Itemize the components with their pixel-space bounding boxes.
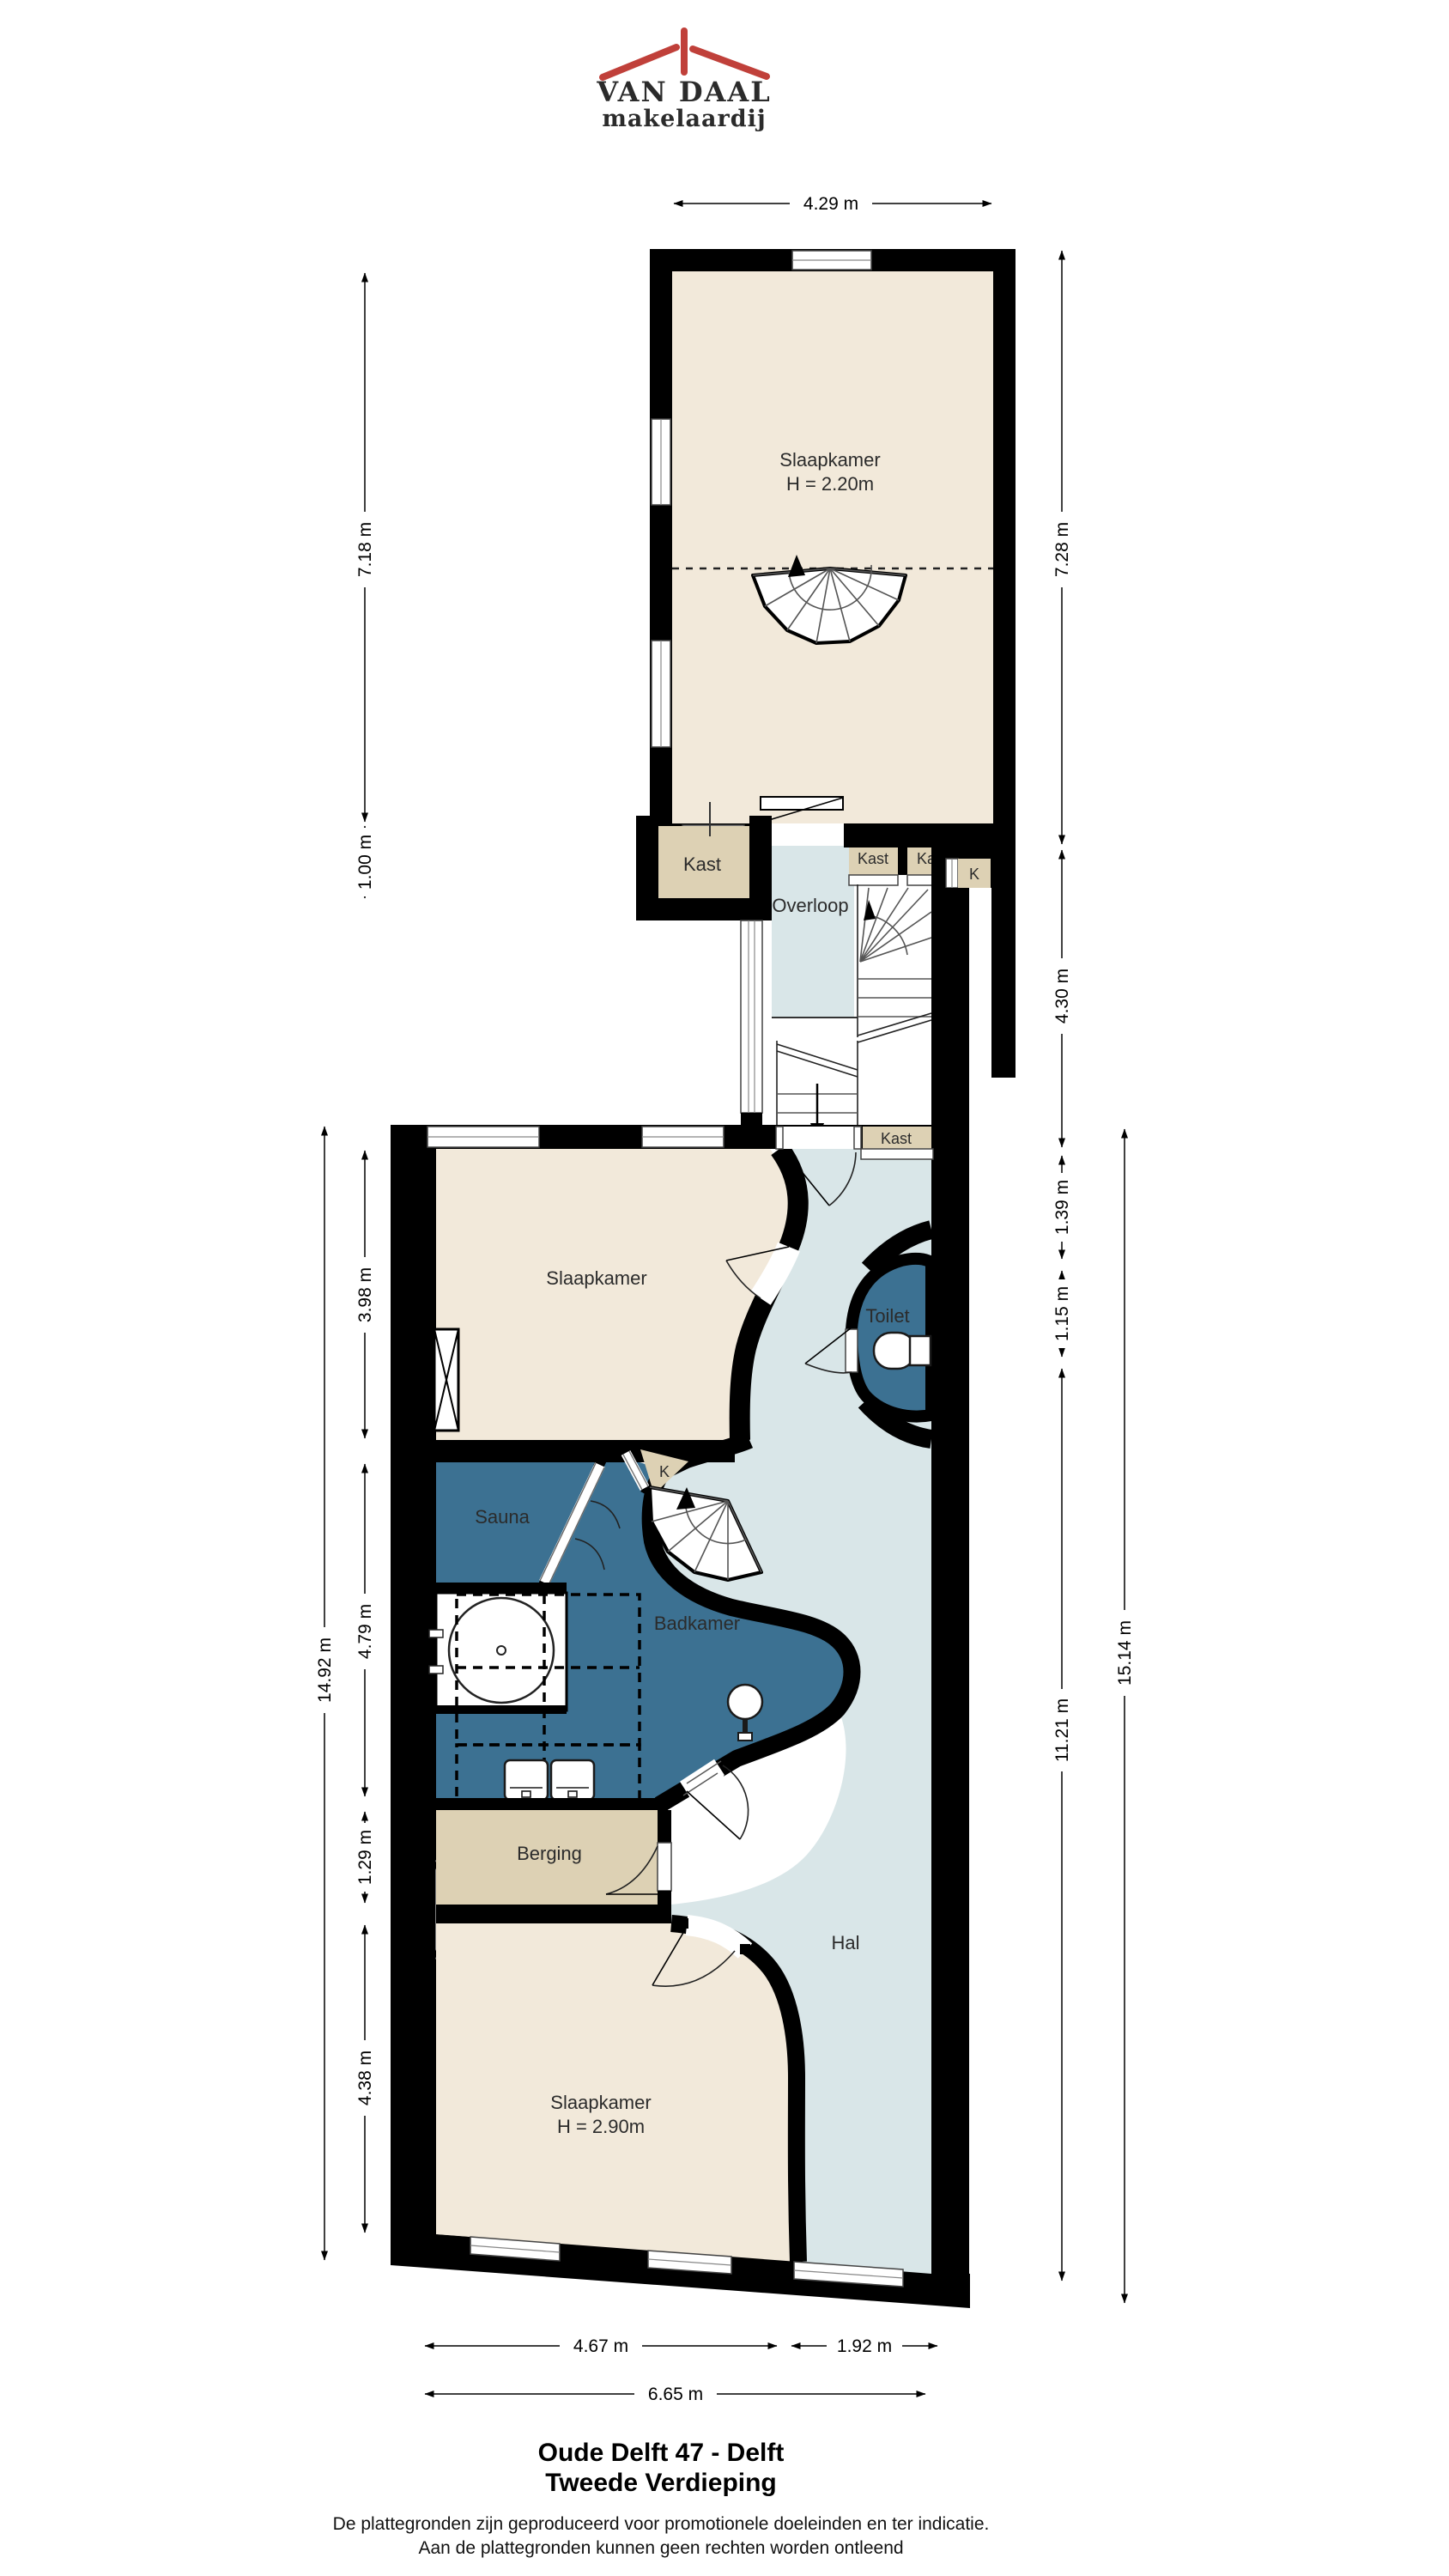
wall — [991, 848, 1016, 1078]
wall — [931, 888, 969, 2305]
room-label-kast-k-mid: K — [659, 1463, 670, 1480]
svg-text:1.92 m: 1.92 m — [837, 2336, 892, 2356]
svg-text:4.29 m: 4.29 m — [803, 194, 858, 214]
svg-text:11.21 m: 11.21 m — [1052, 1698, 1072, 1762]
room-label-bedroom-bottom: Slaapkamer — [550, 2092, 651, 2113]
room-label-storage: Berging — [517, 1843, 582, 1864]
svg-text:6.65 m: 6.65 m — [648, 2385, 703, 2404]
bathtub — [429, 1593, 567, 1714]
wall — [391, 1125, 436, 2262]
dimension-bottom-hall: 1.92 m — [791, 2335, 937, 2357]
svg-text:4.67 m: 4.67 m — [573, 2336, 628, 2356]
dimension-left-bedroom-bottom: 4.38 m — [354, 1925, 376, 2233]
main-floor-section: Slaapkamer Kast — [391, 1125, 970, 2308]
dimension-left-kast: 1.00 m — [354, 826, 376, 898]
room-label-kast-k-top: K — [969, 866, 979, 883]
svg-text:7.28 m: 7.28 m — [1052, 522, 1072, 577]
svg-text:15.14 m: 15.14 m — [1115, 1620, 1135, 1686]
room-label-overloop: Overloop — [772, 895, 848, 916]
toilet-fixture — [874, 1333, 931, 1369]
room-label-bedroom-top: Slaapkamer — [779, 449, 880, 471]
dimension-bottom-bedroom: 4.67 m — [425, 2335, 777, 2357]
room-height-bedroom-bottom: H = 2.90m — [557, 2116, 645, 2137]
page-title: Oude Delft 47 - Delft — [538, 2439, 785, 2467]
room-label-kast-a: Kast — [858, 850, 888, 867]
dimension-left-bathroom: 4.79 m — [354, 1464, 376, 1796]
dimension-left-bedroom-mid: 3.98 m — [354, 1151, 376, 1438]
dimension-right-total: 15.14 m — [1113, 1129, 1136, 2303]
page-subtitle: Tweede Verdieping — [545, 2469, 777, 2497]
room-label-bathroom: Badkamer — [654, 1613, 740, 1634]
svg-text:1.15 m: 1.15 m — [1052, 1286, 1072, 1341]
svg-text:4.30 m: 4.30 m — [1052, 969, 1072, 1024]
dimension-right-toilet: 1.15 m — [1051, 1271, 1073, 1357]
room-label-hall: Hal — [831, 1932, 859, 1953]
room-bedroom-top-floor — [672, 271, 993, 823]
svg-text:7.18 m: 7.18 m — [355, 522, 375, 577]
room-label-kast-top: Kast — [683, 854, 721, 875]
company-logo: VAN DAAL makelaardij — [596, 31, 771, 132]
svg-text:14.92 m: 14.92 m — [315, 1637, 335, 1703]
room-label-kast-stair: Kast — [881, 1130, 912, 1147]
svg-text:1.00 m: 1.00 m — [355, 835, 375, 890]
svg-text:3.98 m: 3.98 m — [355, 1267, 375, 1322]
room-height-bedroom-top: H = 2.20m — [786, 473, 874, 495]
room-overloop-floor — [772, 846, 854, 1018]
dimension-left-storage: 1.29 m — [354, 1812, 376, 1903]
svg-text:4.79 m: 4.79 m — [355, 1604, 375, 1659]
dimension-bottom-total: 6.65 m — [425, 2383, 925, 2405]
dimension-right-kast: 1.39 m — [1051, 1156, 1073, 1259]
roof-icon — [603, 31, 767, 77]
logo-text-sub: makelaardij — [602, 106, 766, 132]
dimension-top-width: 4.29 m — [674, 192, 991, 215]
dimension-right-room-top: 7.28 m — [1051, 251, 1073, 844]
logo-text-main: VAN DAAL — [596, 76, 771, 108]
room-label-toilet: Toilet — [865, 1305, 909, 1327]
dimension-right-stairs: 4.30 m — [1051, 850, 1073, 1147]
window — [741, 898, 762, 1127]
svg-text:1.29 m: 1.29 m — [355, 1830, 375, 1885]
top-bedroom-section: Slaapkamer H = 2.20m — [650, 249, 1016, 871]
dimension-right-hall: 11.21 m — [1051, 1369, 1073, 2281]
dimension-left-total: 14.92 m — [313, 1127, 336, 2260]
floorplan-canvas: VAN DAAL makelaardij — [0, 0, 1449, 2576]
disclaimer-line2: Aan de plattegronden kunnen geen rechten… — [418, 2538, 903, 2558]
floorplan-page: VAN DAAL makelaardij — [0, 0, 1449, 2576]
svg-text:4.38 m: 4.38 m — [355, 2050, 375, 2105]
room-label-bedroom-mid: Slaapkamer — [546, 1267, 646, 1289]
footer: Oude Delft 47 - Delft Tweede Verdieping … — [333, 2439, 990, 2558]
disclaimer-line1: De plattegronden zijn geproduceerd voor … — [333, 2514, 990, 2534]
dimension-left-room-top: 7.18 m — [354, 273, 376, 822]
room-label-sauna: Sauna — [475, 1506, 530, 1528]
svg-text:1.39 m: 1.39 m — [1052, 1180, 1072, 1235]
